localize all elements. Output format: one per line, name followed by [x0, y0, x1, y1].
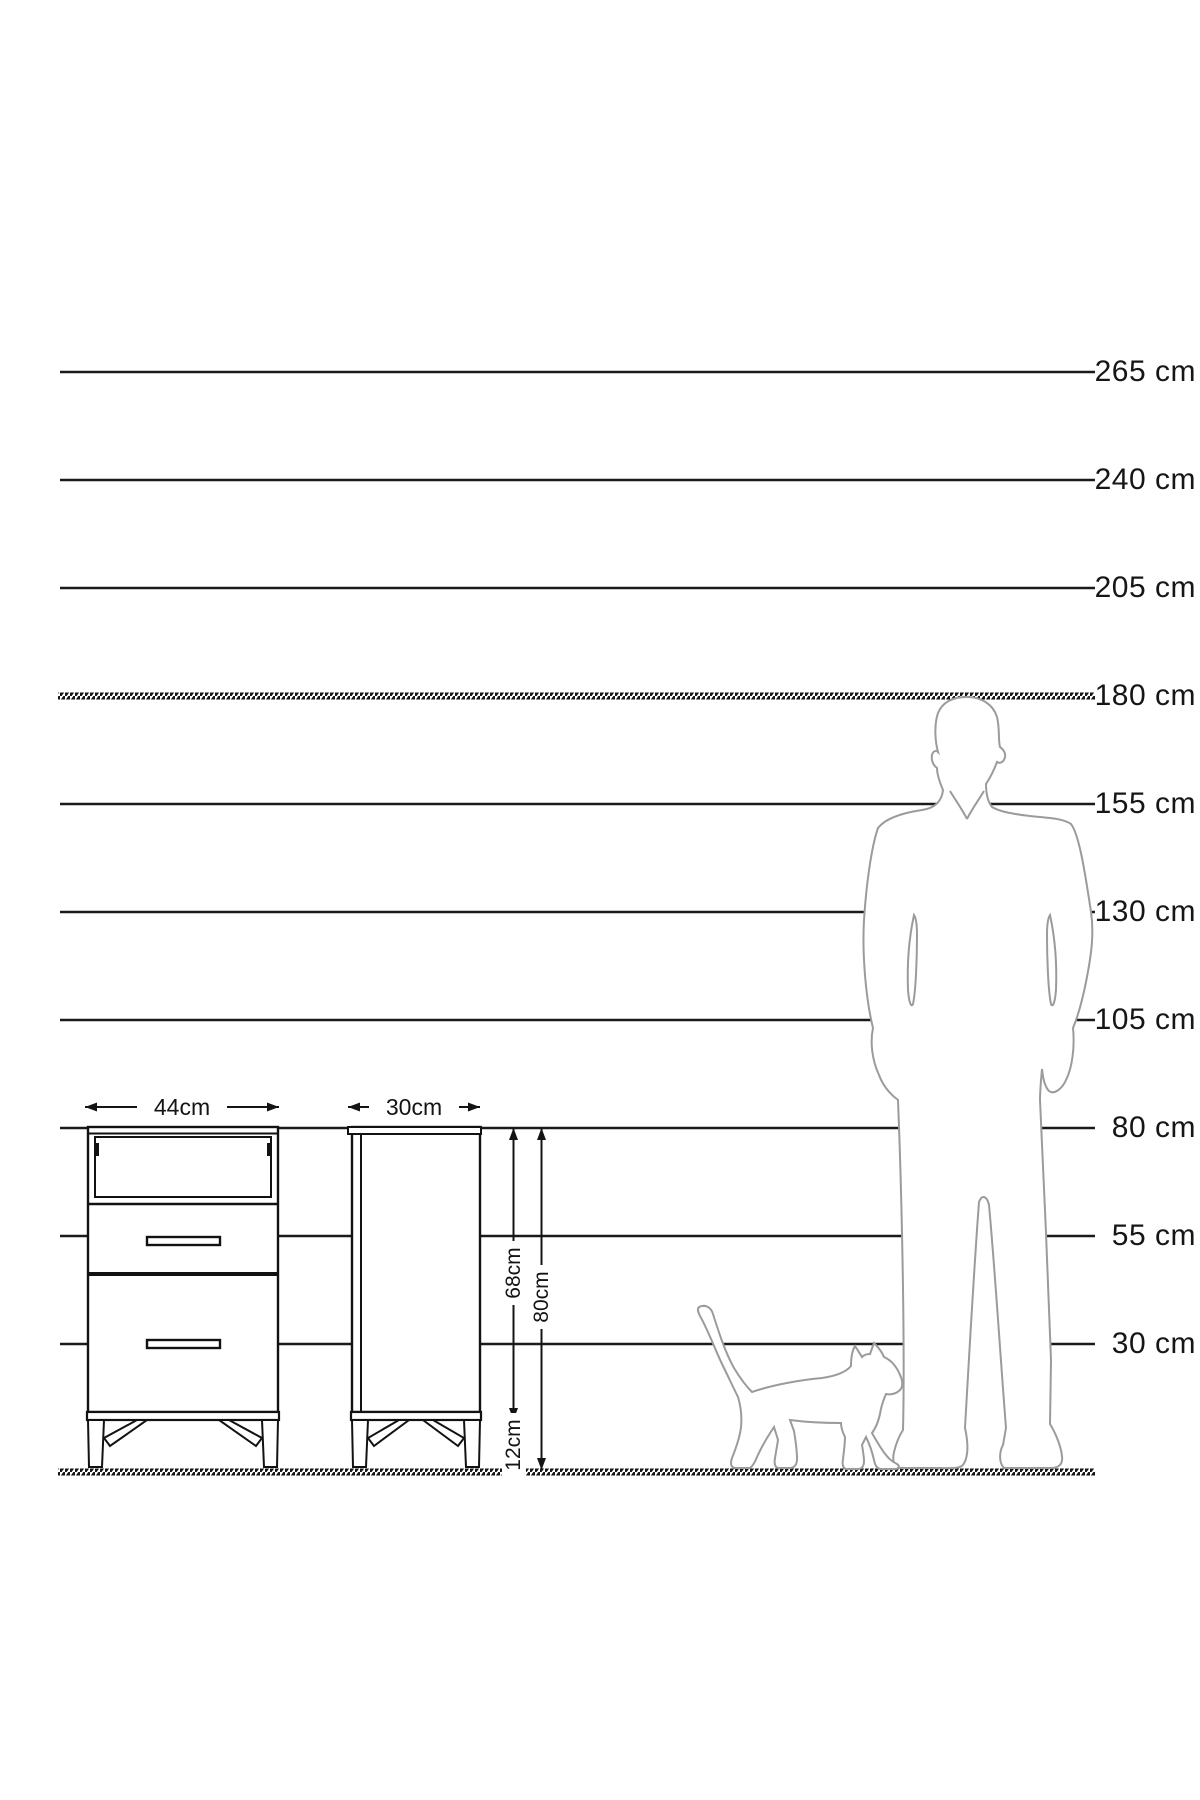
ruler-label-130-cm: 130 cm: [1006, 892, 1196, 932]
dim-label-leg-height: 12cm: [502, 1413, 526, 1477]
base-plinth: [87, 1412, 279, 1420]
cat-outline: [698, 1306, 902, 1469]
floor-line: [58, 1469, 1095, 1476]
cat-silhouette: [698, 1306, 902, 1469]
ruler-label-180-cm: 180 cm: [1006, 676, 1196, 716]
ruler-label-55-cm: 55 cm: [1006, 1216, 1196, 1256]
open-shelf: [95, 1137, 271, 1197]
ruler-label-240-cm: 240 cm: [1006, 460, 1196, 500]
dim-label-side-depth: 30cm: [369, 1094, 459, 1120]
furniture-legs: [352, 1420, 480, 1467]
ruler-label-265-cm: 265 cm: [1006, 352, 1196, 392]
ruler-label-205-cm: 205 cm: [1006, 568, 1196, 608]
furniture-legs: [88, 1420, 278, 1467]
ruler-label-155-cm: 155 cm: [1006, 784, 1196, 824]
top-panel: [348, 1127, 481, 1134]
dim-label-total-height: 80cm: [530, 1265, 554, 1329]
dim-label-front-width: 44cm: [137, 1094, 227, 1120]
dim-label-body-height: 68cm: [502, 1241, 526, 1305]
dimension-diagram: 265 cm240 cm205 cm180 cm155 cm130 cm105 …: [0, 0, 1200, 1800]
furniture-front-view: [87, 1127, 279, 1467]
base-plinth: [351, 1412, 481, 1420]
ruler-line-180-cm: [58, 693, 1095, 700]
ruler-label-30-cm: 30 cm: [1006, 1324, 1196, 1364]
drawer-handle: [147, 1340, 220, 1348]
ruler-label-80-cm: 80 cm: [1006, 1108, 1196, 1148]
ruler-label-105-cm: 105 cm: [1006, 1000, 1196, 1040]
furniture-side-view: [348, 1127, 481, 1467]
drawer-handle: [147, 1237, 220, 1245]
